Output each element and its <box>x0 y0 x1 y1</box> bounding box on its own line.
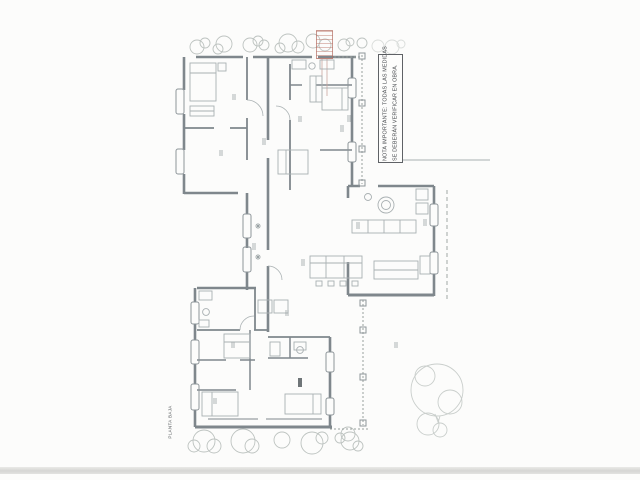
note-line-2: SE DEBERÁN VERIFICAR EN OBRA. <box>390 57 400 161</box>
approval-stamp <box>316 30 333 59</box>
faint-trees-right <box>372 40 405 54</box>
note-line-1: NOTA IMPORTANTE: TODAS LAS MEDIDAS <box>380 57 390 161</box>
hearth-mark <box>298 378 302 387</box>
important-note-box: NOTA IMPORTANTE: TODAS LAS MEDIDAS SE DE… <box>378 54 403 163</box>
porch-dotted-lines <box>330 55 368 429</box>
scanned-floor-plan-page: NOTA IMPORTANTE: TODAS LAS MEDIDAS SE DE… <box>0 0 640 480</box>
big-tree <box>411 364 463 437</box>
important-note-text: NOTA IMPORTANTE: TODAS LAS MEDIDAS SE DE… <box>380 57 401 161</box>
tree-row-bottom <box>188 427 363 454</box>
scan-edge-band <box>0 467 640 474</box>
tree-row-top <box>190 34 405 54</box>
floor-plan-drawing <box>0 0 640 480</box>
stamp-guide-lines <box>322 59 327 96</box>
